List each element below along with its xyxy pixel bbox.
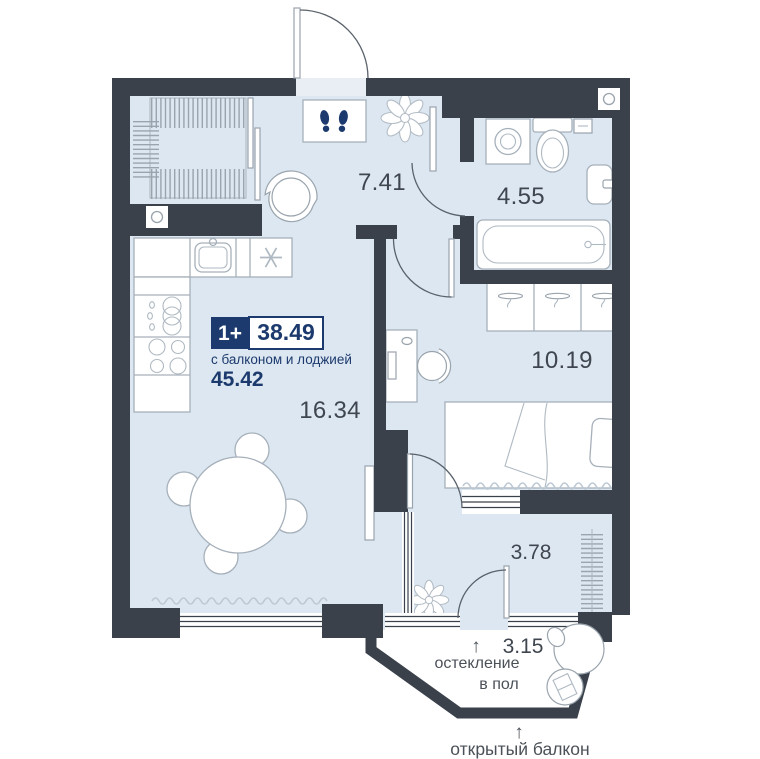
- bathtub-icon: [477, 220, 610, 269]
- loggia-area-label: 3.78: [511, 541, 552, 564]
- living-room-window: [180, 613, 322, 630]
- closet-sliding-door: [255, 128, 260, 200]
- vent-icon: [146, 206, 168, 228]
- bedroom-loggia-window: [462, 490, 520, 514]
- bedroom-wardrobe: [487, 283, 628, 331]
- plant-icon: [381, 94, 429, 142]
- entrance-door: [294, 8, 368, 96]
- hanging-chair-icon: [544, 624, 604, 705]
- hallway-area-label: 7.41: [358, 169, 406, 196]
- glazing-note-line2: в пол: [479, 676, 519, 693]
- radiator: [365, 466, 374, 540]
- glazing-arrow: ↑: [471, 636, 481, 657]
- desk: [386, 330, 417, 402]
- glazing-note-line1: остекление: [434, 655, 519, 672]
- washing-machine-icon: [486, 119, 530, 164]
- floor-plan: 7.41 4.55 10.19 16.34 3.78 3.15 1+ 38.49…: [0, 0, 760, 759]
- shoe-cabinet: [303, 100, 366, 142]
- badge-area: 38.49: [257, 319, 315, 345]
- floor-plan-svg: 7.41 4.55 10.19 16.34 3.78 3.15 1+ 38.49…: [0, 0, 760, 759]
- open-balcony-note: открытый балкон: [450, 739, 589, 759]
- badge-total-area: 45.42: [211, 368, 264, 391]
- lamp-icon: [402, 338, 412, 345]
- bedroom-area-label: 10.19: [531, 347, 593, 374]
- badge-rooms: 1+: [218, 322, 242, 345]
- bathroom-area-label: 4.55: [497, 183, 545, 210]
- closet-sliding-door: [248, 98, 253, 168]
- monitor-icon: [388, 352, 396, 379]
- living-loggia-glazing: [402, 512, 414, 616]
- badge-subtitle: с балконом и лоджией: [211, 352, 352, 367]
- bathroom-sink-icon: [587, 165, 614, 204]
- vent-icon: [598, 88, 620, 110]
- boiler-icon: [574, 119, 592, 133]
- living-area-label: 16.34: [299, 397, 361, 424]
- loggia-window-left: [385, 613, 460, 630]
- dining-table: [190, 457, 286, 553]
- bed: [445, 402, 628, 488]
